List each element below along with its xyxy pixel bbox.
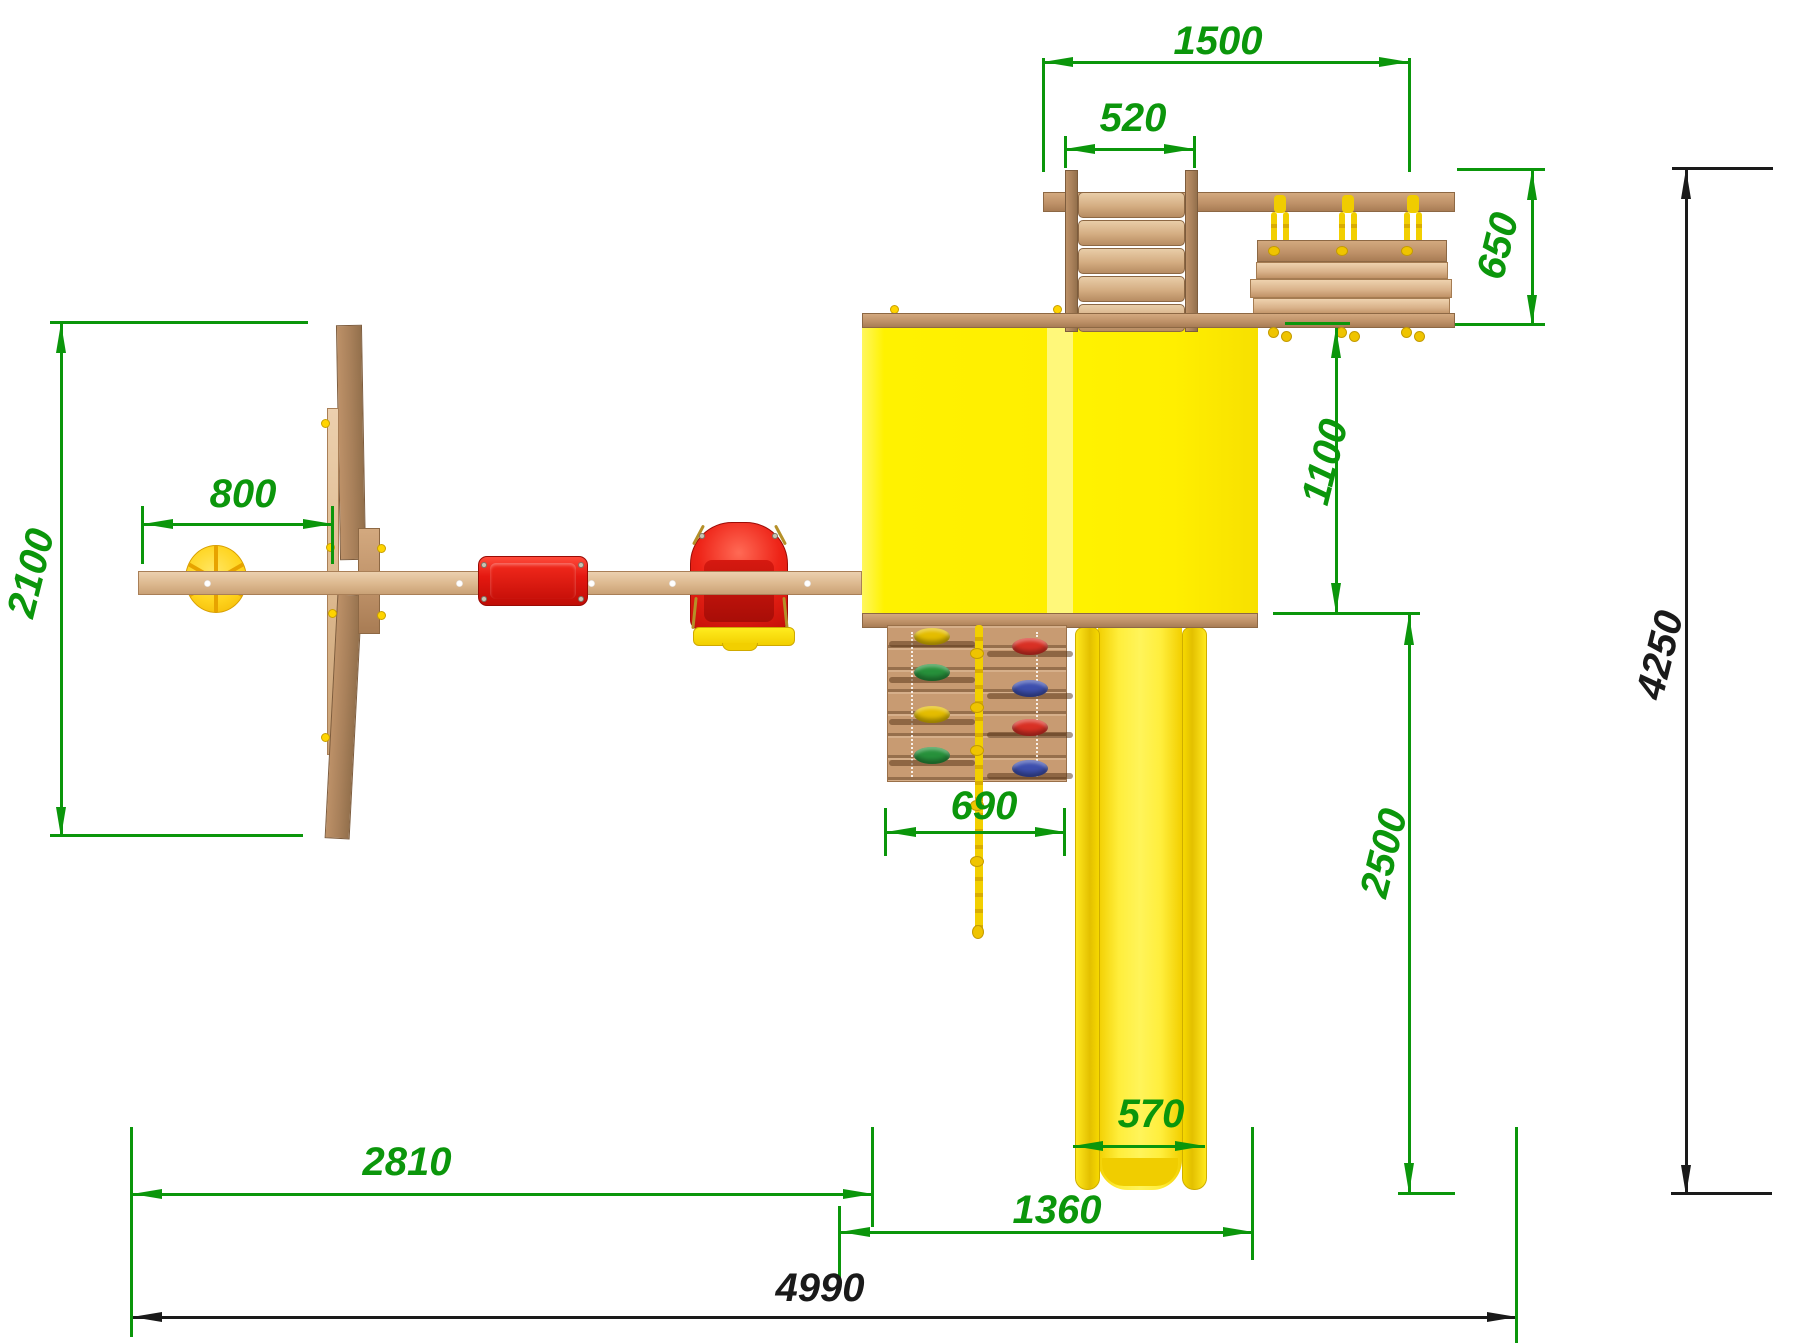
baby-swing-grommet: [772, 533, 778, 539]
ladder-rung: [1078, 220, 1185, 246]
climb-rope: [975, 625, 983, 937]
tower-roof-left-panel: [862, 325, 1047, 614]
dim-label: 2810: [363, 1142, 452, 1182]
dim-label: 2500: [1354, 805, 1414, 901]
glider-screw: [481, 596, 487, 602]
rope-tie: [1342, 195, 1354, 213]
climb-hold-green: [914, 747, 950, 764]
dim-label: 690: [951, 786, 1018, 826]
slide-rail-right: [1182, 627, 1207, 1190]
climb-hold-red: [1012, 719, 1048, 736]
rope-knot: [1401, 246, 1413, 256]
beam-hole: [588, 580, 595, 587]
dim-label: 1500: [1174, 21, 1263, 61]
bridge-mid-rail: [1257, 240, 1447, 262]
rope-end: [1349, 331, 1360, 342]
climb-hold-blue: [1012, 760, 1048, 777]
slide-rail-left: [1075, 627, 1100, 1190]
rope-end: [1268, 327, 1279, 338]
climb-hold-blue: [1012, 680, 1048, 697]
dim-label: 4990: [776, 1268, 865, 1308]
rope-knot: [970, 702, 984, 713]
baby-swing-grommet: [699, 533, 705, 539]
glider-screw: [578, 596, 584, 602]
bridge-deck-slat: [1256, 262, 1448, 279]
climb-hold-yellow: [914, 628, 950, 645]
climb-hold-green: [914, 664, 950, 681]
tower-roof-ridge: [1047, 325, 1073, 614]
glider-swing-inner: [490, 563, 576, 599]
rope-tie: [1274, 195, 1286, 213]
beam-hole: [804, 580, 811, 587]
baby-swing-base-tab: [722, 643, 758, 651]
ladder-post-left: [1065, 170, 1078, 332]
dim-label: 2100: [1, 525, 61, 621]
dim-label: 1360: [1013, 1190, 1102, 1230]
rope-end: [1281, 331, 1292, 342]
ladder-rung: [1078, 248, 1185, 274]
beam-hole: [204, 580, 211, 587]
beam-hole: [456, 580, 463, 587]
beam-hole: [669, 580, 676, 587]
rope-end: [1401, 327, 1412, 338]
rope-knot: [1268, 246, 1280, 256]
bolt: [321, 419, 330, 428]
climb-hold-red: [1012, 638, 1048, 655]
rope-knot: [970, 856, 984, 867]
bridge-deck-slat: [1250, 279, 1452, 298]
ladder-rung: [1078, 192, 1185, 218]
aframe-upper-leg: [336, 325, 366, 560]
glider-screw: [578, 562, 584, 568]
tower-top-plank: [862, 313, 1455, 328]
dim-label: 570: [1118, 1094, 1185, 1134]
bolt: [377, 611, 386, 620]
dim-label: 800: [210, 474, 277, 514]
rope-end: [972, 925, 984, 939]
slide-end-lip: [1102, 1158, 1178, 1186]
dim-label: 4250: [1630, 607, 1690, 703]
glider-screw: [481, 562, 487, 568]
ladder-post-right: [1185, 170, 1198, 332]
rope-knot: [1336, 246, 1348, 256]
dim-label: 650: [1471, 209, 1526, 283]
ladder-rung: [1078, 276, 1185, 302]
rope-knot: [970, 745, 984, 756]
rope-knot: [970, 648, 984, 659]
playground-plan-drawing: 1500 520 650 1100 2500: [0, 0, 1800, 1343]
bolt: [321, 733, 330, 742]
rope-tie: [1407, 195, 1419, 213]
tower-roof-right-panel: [1073, 325, 1258, 614]
climb-hold-yellow: [914, 706, 950, 723]
bolt: [377, 544, 386, 553]
screw-dot-line: [911, 632, 913, 777]
rope-end: [1414, 331, 1425, 342]
bolt: [328, 609, 337, 618]
dim-label: 1100: [1295, 415, 1355, 508]
dim-label: 520: [1100, 98, 1167, 138]
